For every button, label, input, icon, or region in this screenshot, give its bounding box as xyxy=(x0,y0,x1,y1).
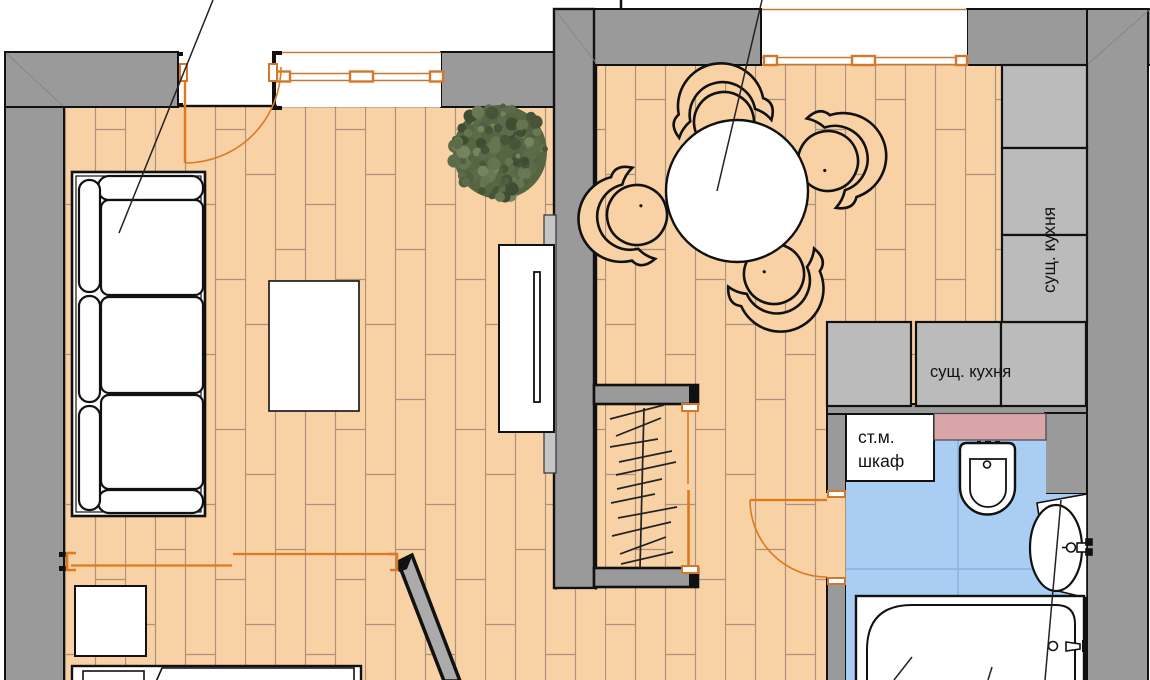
svg-text:ст.м.: ст.м. xyxy=(858,427,895,447)
svg-text:сущ. кухня: сущ. кухня xyxy=(930,363,1011,381)
svg-text:сущ. кухня: сущ. кухня xyxy=(1039,207,1059,293)
svg-text:шкаф: шкаф xyxy=(858,451,904,471)
